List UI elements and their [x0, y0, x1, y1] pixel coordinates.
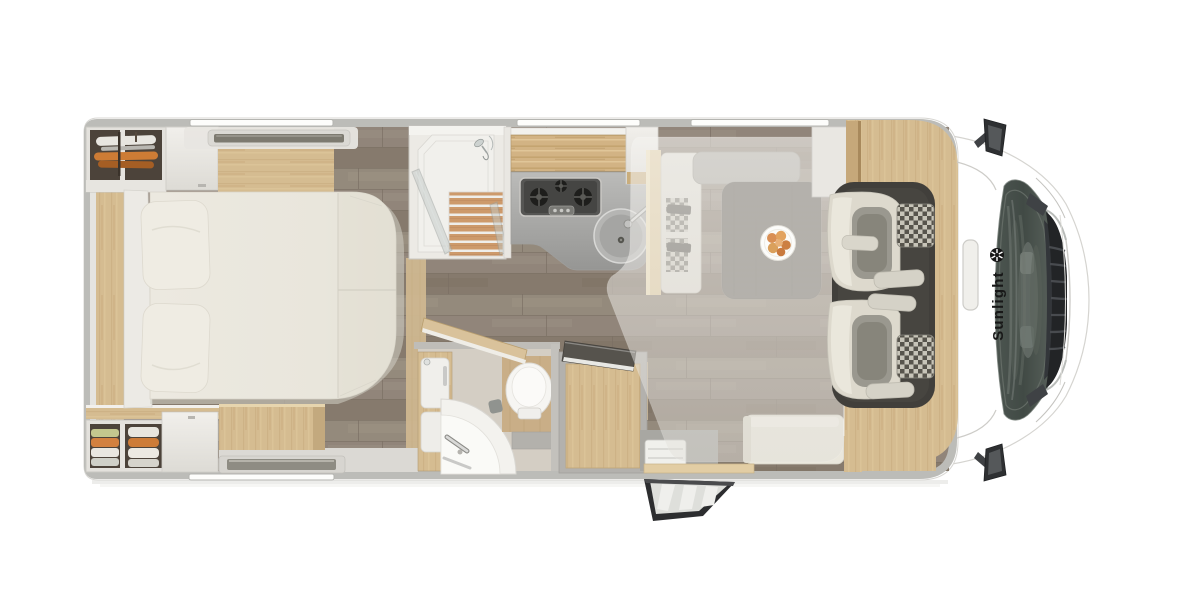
svg-text:Sunlight: Sunlight — [990, 271, 1007, 341]
